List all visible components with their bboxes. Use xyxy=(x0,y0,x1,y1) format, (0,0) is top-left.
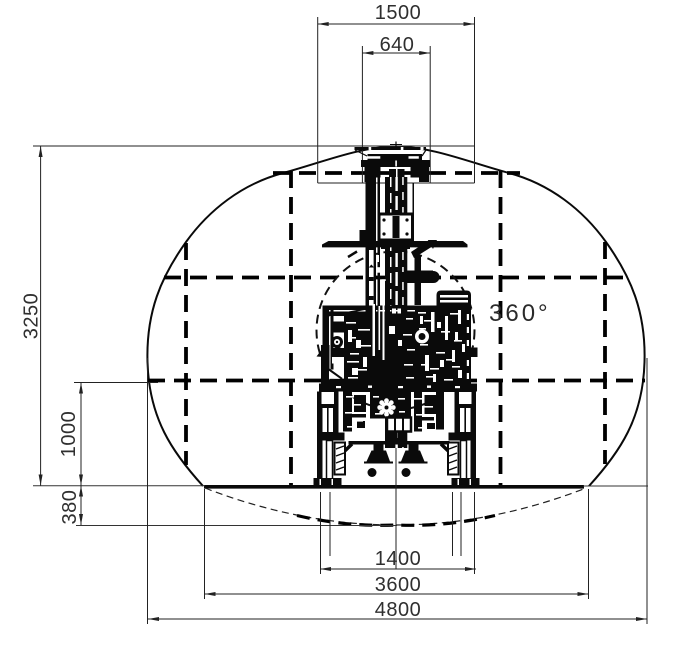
svg-text:380: 380 xyxy=(59,490,81,525)
svg-text:1000: 1000 xyxy=(58,411,80,458)
svg-text:640: 640 xyxy=(380,34,415,56)
svg-text:4800: 4800 xyxy=(375,599,422,621)
svg-text:3250: 3250 xyxy=(21,293,43,340)
svg-text:1400: 1400 xyxy=(375,548,422,570)
svg-text:360°: 360° xyxy=(489,300,551,327)
svg-text:1500: 1500 xyxy=(375,2,422,24)
svg-text:3600: 3600 xyxy=(375,574,422,596)
